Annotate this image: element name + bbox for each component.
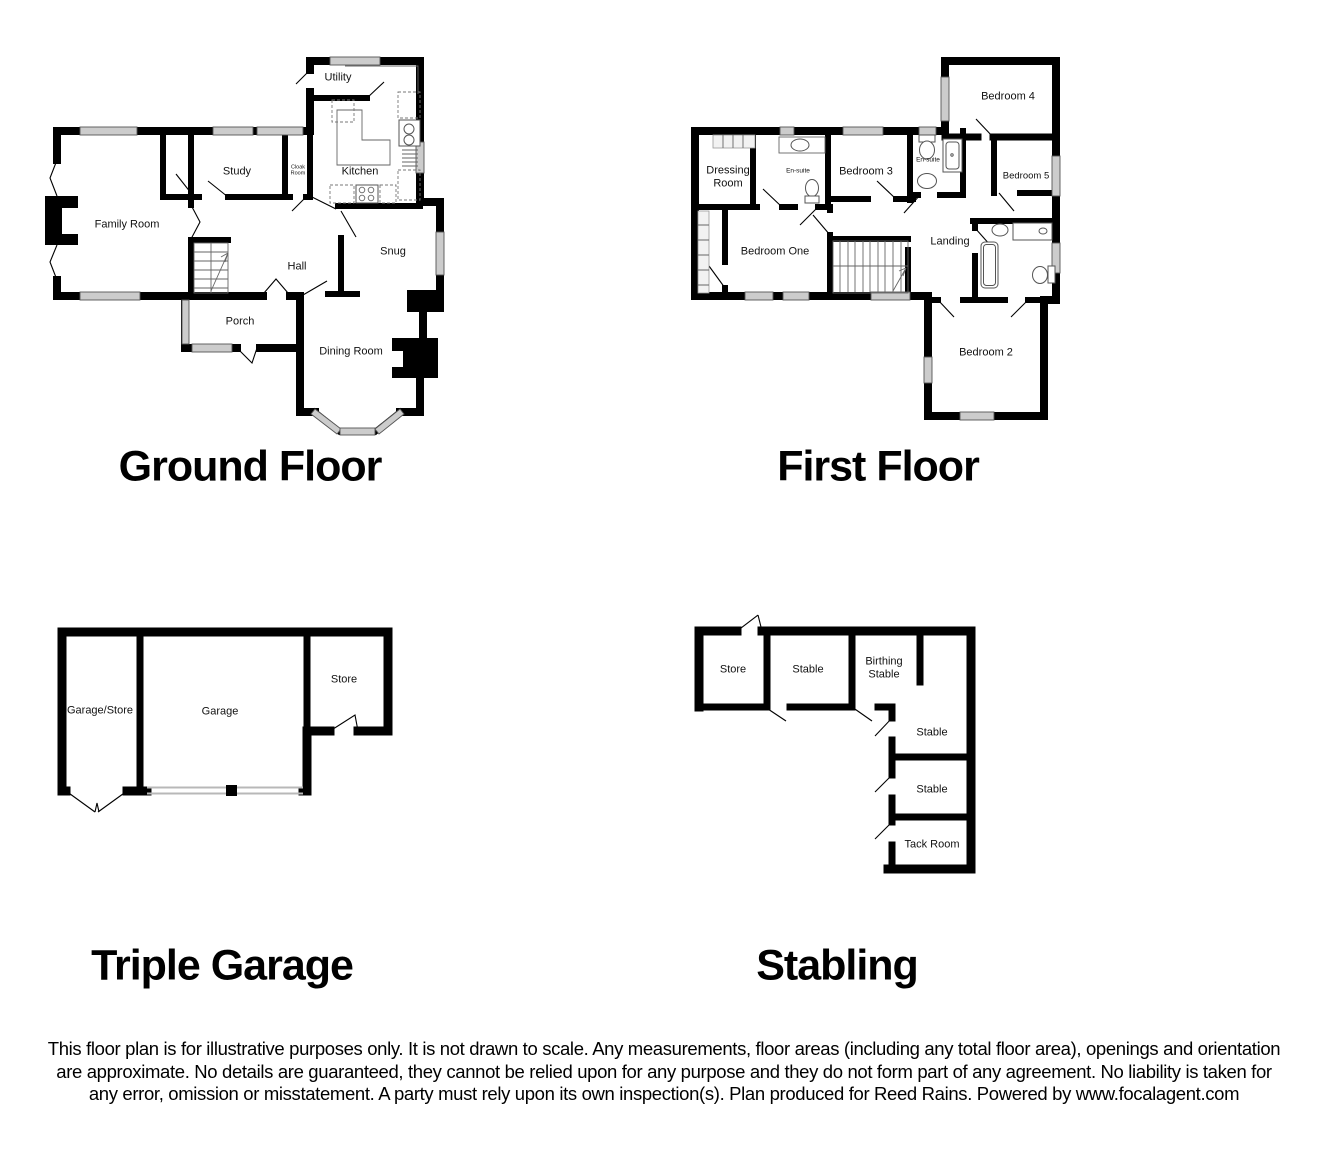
room-label-bedroom-one: Bedroom One (741, 246, 809, 259)
kitchen-fixtures (330, 66, 420, 203)
first-floor-title: First Floor (777, 443, 979, 492)
room-label-study: Study (223, 166, 251, 179)
first-stairs (833, 241, 908, 293)
room-label-ensuite-a: En-suite (786, 167, 810, 174)
room-label-hall: Hall (288, 261, 307, 274)
ground-floor-drawing (45, 40, 455, 435)
ground-floor-title: Ground Floor (119, 443, 382, 492)
bathroom-fixtures (981, 223, 1055, 288)
floorplan-page: Family Room Study Cloak Room Kitchen Uti… (0, 0, 1328, 1151)
room-label-kitchen: Kitchen (342, 166, 379, 179)
room-label-family-room: Family Room (95, 219, 160, 232)
garage-door-post (226, 785, 237, 796)
stabling-title: Stabling (756, 942, 918, 991)
disclaimer-text: This floor plan is for illustrative purp… (44, 1038, 1284, 1106)
room-label-stable-store: Store (720, 664, 746, 677)
room-label-garage-store2: Store (331, 674, 357, 687)
room-label-dressing-room: Dressing Room (699, 164, 757, 189)
room-label-birthing-stable: Birthing Stable (860, 655, 908, 680)
room-label-porch: Porch (226, 316, 255, 329)
ground-floor-plan: Family Room Study Cloak Room Kitchen Uti… (45, 40, 455, 435)
room-label-stable-lower: Stable (916, 784, 947, 797)
room-label-cloak-room: Cloak Room (287, 165, 309, 178)
room-label-utility: Utility (325, 72, 352, 85)
room-label-garage: Garage (202, 706, 239, 719)
triple-garage-plan: Garage/Store Garage Store (55, 625, 395, 805)
room-label-bedroom-4: Bedroom 4 (981, 91, 1035, 104)
room-label-bedroom-2: Bedroom 2 (959, 347, 1013, 360)
room-label-snug: Snug (380, 246, 406, 259)
ground-doors (50, 70, 384, 363)
stabling-plan: Store Stable Birthing Stable Stable Stab… (693, 612, 983, 882)
room-label-stable-mid: Stable (916, 727, 947, 740)
room-label-tack-room: Tack Room (904, 839, 959, 852)
triple-garage-title: Triple Garage (91, 942, 353, 991)
room-label-stable-top: Stable (792, 664, 823, 677)
stabling-doors (737, 615, 892, 839)
room-label-garage-store: Garage/Store (67, 705, 133, 718)
room-label-bedroom-5: Bedroom 5 (1003, 172, 1049, 183)
room-label-ensuite-b: En-suite (916, 156, 940, 163)
room-label-bedroom-3: Bedroom 3 (839, 166, 893, 179)
first-floor-drawing (693, 50, 1068, 425)
first-floor-plan: Dressing Room En-suite Bedroom 3 En-suit… (693, 50, 1068, 425)
room-label-dining-room: Dining Room (319, 346, 383, 359)
ground-stairs (194, 243, 228, 293)
room-label-landing: Landing (930, 236, 969, 249)
first-walls (695, 61, 1056, 416)
